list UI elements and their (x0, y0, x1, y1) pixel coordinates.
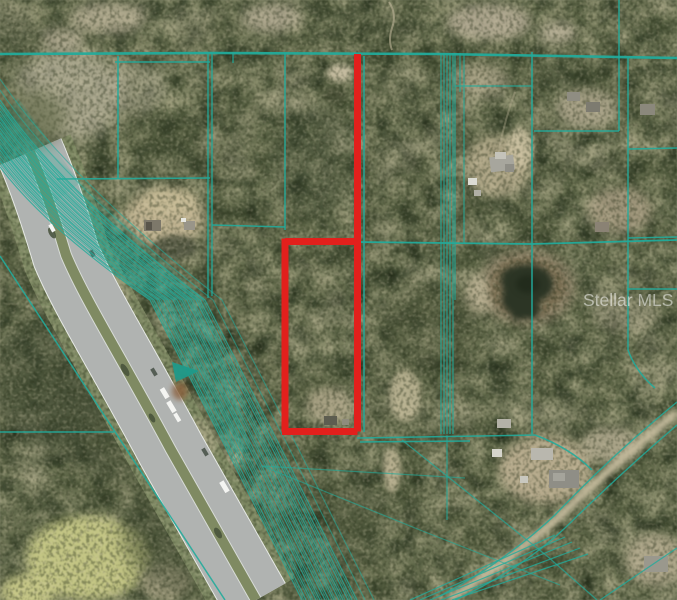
svg-text:Stellar MLS: Stellar MLS (583, 290, 673, 310)
